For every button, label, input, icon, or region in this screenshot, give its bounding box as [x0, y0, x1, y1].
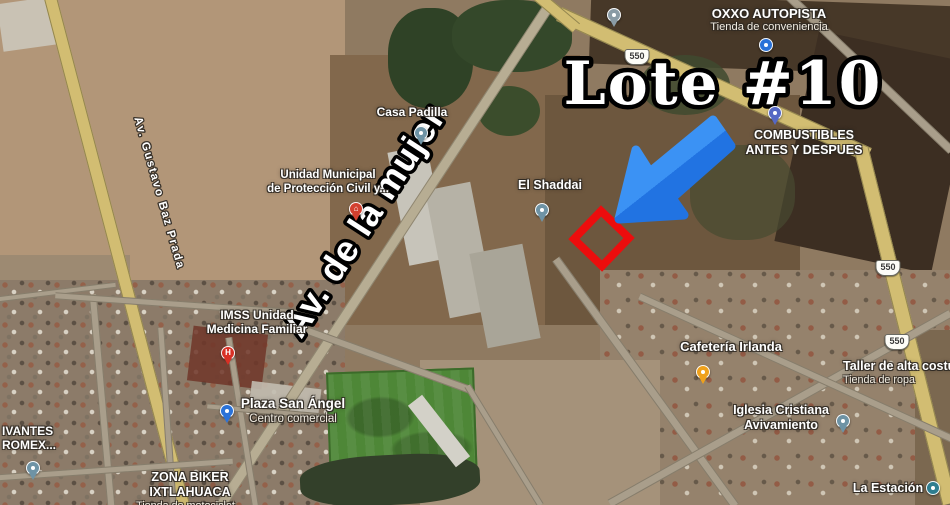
place-label-zona-biker[interactable]: ZONA BIKERIXTLAHUACATienda de motociclet…	[136, 470, 244, 505]
pin-glyph	[225, 409, 229, 413]
place-label-proteccion-civil[interactable]: Unidad Municipalde Protección Civil y...	[267, 169, 389, 196]
place-label-el-shaddai[interactable]: El Shaddai	[518, 178, 582, 193]
map-canvas: Av. Gustavo Baz Prada Av. de la mujer Lo…	[0, 0, 950, 505]
hospital-pin[interactable]: H	[221, 346, 235, 360]
place-subtitle: Tienda de ropa	[843, 374, 950, 387]
place-label-taller[interactable]: Taller de alta costuTienda de ropa	[843, 359, 950, 386]
place-label-la-estacion[interactable]: La Estación	[853, 481, 923, 496]
route-shield-550: 550	[884, 334, 909, 350]
pin-glyph	[773, 111, 777, 115]
gas-station-pin[interactable]	[768, 106, 782, 120]
pin-glyph	[31, 466, 35, 470]
poi-pin-left-edge[interactable]	[26, 461, 40, 475]
place-title-line: Cafetería Irlanda	[680, 339, 782, 354]
pin-glyph	[764, 43, 768, 47]
place-title-line: Unidad Municipal	[267, 169, 389, 183]
place-label-imss[interactable]: IMSS UnidadMedicina Familiar	[207, 308, 308, 336]
place-title-line: ZONA BIKER	[136, 470, 244, 485]
pin-glyph	[419, 131, 423, 135]
place-label-plaza-san-angel[interactable]: Plaza San ÁngelCentro comercial	[241, 396, 345, 426]
convenience-store-pin[interactable]	[759, 38, 773, 52]
place-title-line: Taller de alta costu	[843, 359, 950, 374]
poi-pin-la-estacion[interactable]	[926, 481, 940, 495]
place-title-line: Avivamiento	[733, 418, 829, 433]
place-title-line: COMBUSTIBLES	[746, 128, 863, 143]
poi-pin-casa-padilla[interactable]	[414, 126, 428, 140]
shopping-mall-pin[interactable]	[220, 404, 234, 418]
place-label-iglesia[interactable]: Iglesia CristianaAvivamiento	[733, 403, 829, 433]
civic-building-pin[interactable]: ⌂	[349, 202, 363, 216]
pin-glyph	[612, 13, 616, 17]
pin-glyph	[931, 486, 935, 490]
place-title-line: ANTES Y DESPUES	[746, 143, 863, 158]
place-subtitle: Tienda de conveniencia	[710, 21, 828, 34]
place-title-line: de Protección Civil y...	[267, 183, 389, 197]
place-subtitle: Centro comercial	[241, 412, 345, 426]
church-pin[interactable]	[836, 414, 850, 428]
poi-pin-el-shaddai[interactable]	[535, 203, 549, 217]
pin-glyph	[841, 419, 845, 423]
place-label-combustibles[interactable]: COMBUSTIBLESANTES Y DESPUES	[746, 128, 863, 158]
place-title-line: OXXO AUTOPISTA	[710, 6, 828, 21]
place-label-casa-padilla[interactable]: Casa Padilla	[377, 105, 448, 119]
place-title-line: Plaza San Ángel	[241, 396, 345, 412]
place-title-line: ROMEX...	[2, 438, 56, 452]
place-label-oxxo-autopista[interactable]: OXXO AUTOPISTATienda de conveniencia	[710, 6, 828, 35]
place-title-line: Casa Padilla	[377, 105, 448, 119]
place-title-line: Iglesia Cristiana	[733, 403, 829, 418]
place-title-line: La Estación	[853, 481, 923, 496]
place-subtitle: Tienda de motociclet...	[136, 500, 244, 505]
route-shield-550: 550	[875, 260, 900, 276]
pin-glyph: ⌂	[354, 205, 359, 213]
place-title-line: IXTLAHUACA	[136, 485, 244, 500]
pin-glyph: H	[225, 349, 231, 357]
store-pin[interactable]	[607, 8, 621, 22]
pin-glyph	[540, 208, 544, 212]
place-title-line: IVANTES	[2, 424, 56, 438]
place-label-cafeteria-irlanda[interactable]: Cafetería Irlanda	[680, 339, 782, 354]
pin-glyph	[701, 370, 705, 374]
route-shield-550: 550	[624, 49, 649, 65]
place-label-edge-partial[interactable]: IVANTESROMEX...	[2, 424, 56, 452]
place-title-line: IMSS Unidad	[207, 308, 308, 322]
trees	[690, 145, 795, 240]
cafe-pin[interactable]	[696, 365, 710, 379]
place-title-line: El Shaddai	[518, 178, 582, 193]
place-title-line: Medicina Familiar	[207, 322, 308, 336]
